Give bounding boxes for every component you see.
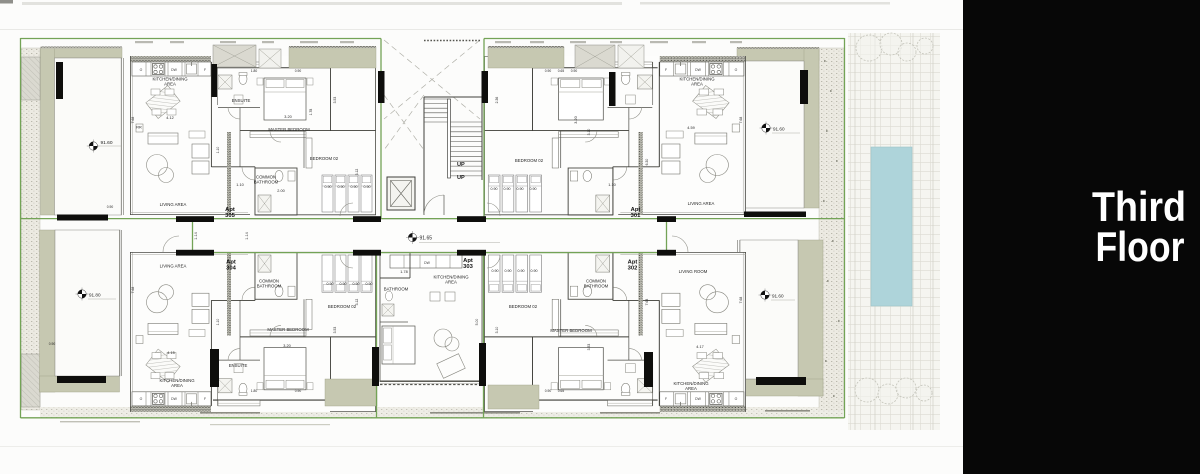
svg-text:0.90: 0.90 [531,269,538,273]
svg-text:F: F [204,397,206,401]
svg-text:UP: UP [457,162,465,168]
svg-text:4.15: 4.15 [167,351,174,355]
svg-text:DW: DW [695,397,701,401]
svg-text:F: F [665,68,667,72]
svg-text:0.90: 0.90 [364,185,371,189]
svg-text:BATHROOM: BATHROOM [384,287,409,292]
svg-text:BEDROOM 02: BEDROOM 02 [515,158,544,163]
svg-text:0.90: 0.90 [295,69,302,73]
svg-text:0.90: 0.90 [295,389,302,393]
svg-text:5.00: 5.00 [475,319,479,326]
svg-text:304: 304 [226,266,236,272]
svg-text:7.68: 7.68 [739,297,743,304]
svg-text:AREA: AREA [445,280,457,285]
svg-text:0.90: 0.90 [351,185,358,189]
svg-text:1.80: 1.80 [251,69,258,73]
svg-text:Apt: Apt [631,207,641,213]
svg-text:DW: DW [424,261,430,265]
svg-text:0.90: 0.90 [49,342,56,346]
svg-text:BATHROOM: BATHROOM [257,284,282,289]
svg-text:0.90: 0.90 [530,187,537,191]
svg-text:O: O [735,68,738,72]
svg-text:3.53: 3.53 [587,344,591,351]
svg-text:0.90: 0.90 [338,185,345,189]
svg-text:BATHROOM: BATHROOM [584,284,609,289]
svg-text:0.90: 0.90 [340,282,347,286]
svg-text:91.60: 91.60 [773,127,785,132]
svg-text:3.20: 3.20 [284,115,291,119]
svg-text:0.90: 0.90 [107,205,114,209]
svg-text:1.78: 1.78 [400,270,407,274]
svg-text:0.90: 0.90 [491,187,498,191]
svg-text:0.65: 0.65 [558,389,565,393]
svg-text:3.20: 3.20 [574,116,578,123]
svg-text:0.90: 0.90 [505,269,512,273]
svg-text:ENSUITE: ENSUITE [232,98,251,103]
svg-text:3.12: 3.12 [355,169,359,176]
svg-text:305: 305 [225,213,235,219]
svg-text:BEDROOM 02: BEDROOM 02 [328,304,357,309]
svg-text:Apt: Apt [226,260,236,266]
svg-text:4.12: 4.12 [166,116,173,120]
svg-text:2.00: 2.00 [277,189,284,193]
svg-text:O: O [140,68,143,72]
svg-text:Apt: Apt [463,258,473,264]
svg-text:Apt: Apt [225,207,235,213]
svg-text:4.17: 4.17 [696,345,703,349]
svg-text:AREA: AREA [685,386,697,391]
svg-text:91.80: 91.80 [89,293,101,298]
svg-text:1.14: 1.14 [194,232,198,239]
svg-text:91.60: 91.60 [772,294,784,299]
svg-text:1.10: 1.10 [236,183,243,187]
svg-text:1.14: 1.14 [245,232,249,239]
svg-text:6.30: 6.30 [645,159,649,166]
svg-text:LIVING ROOM: LIVING ROOM [679,269,708,274]
svg-text:3.20: 3.20 [283,344,290,348]
svg-text:7.68: 7.68 [645,299,649,306]
svg-text:0.90: 0.90 [366,282,373,286]
svg-text:0.90: 0.90 [545,389,552,393]
svg-text:0.90: 0.90 [518,269,525,273]
svg-text:7.68: 7.68 [131,287,135,294]
svg-text:BEDROOM 02: BEDROOM 02 [310,156,339,161]
svg-text:MASTER BEDROOM: MASTER BEDROOM [550,328,592,333]
svg-text:3.10: 3.10 [587,129,591,136]
svg-text:3.53: 3.53 [333,97,337,104]
svg-text:301: 301 [631,213,641,219]
svg-text:BEDROOM 02: BEDROOM 02 [509,304,538,309]
svg-text:DW: DW [695,68,701,72]
svg-text:0.90: 0.90 [517,187,524,191]
svg-text:RR: RR [136,126,142,130]
svg-text:1.80: 1.80 [251,389,258,393]
svg-text:Apt: Apt [628,260,638,266]
svg-text:LIVING AREA: LIVING AREA [688,201,715,206]
svg-text:3.10: 3.10 [495,327,499,334]
svg-text:0.65: 0.65 [558,69,565,73]
svg-text:AREA: AREA [164,82,176,87]
svg-text:Floor: Floor [1096,223,1185,270]
svg-text:7.68: 7.68 [739,117,743,124]
svg-text:3.53: 3.53 [333,327,337,334]
svg-text:DW: DW [171,397,177,401]
svg-text:0.90: 0.90 [545,69,552,73]
svg-text:1.10: 1.10 [216,319,220,326]
svg-text:BATHROOM: BATHROOM [254,180,279,185]
svg-text:DW: DW [171,68,177,72]
svg-text:MASTER BEDROOM: MASTER BEDROOM [267,327,309,332]
svg-text:1.10: 1.10 [608,183,615,187]
svg-text:LIVING AREA: LIVING AREA [160,264,187,269]
svg-text:2.36: 2.36 [495,97,499,104]
svg-text:3.12: 3.12 [355,299,359,306]
svg-text:303: 303 [463,264,473,270]
svg-text:0.90: 0.90 [492,269,499,273]
svg-text:7.68: 7.68 [131,117,135,124]
svg-text:AREA: AREA [691,82,703,87]
svg-text:ENSUITE: ENSUITE [229,363,248,368]
svg-text:F: F [204,68,206,72]
svg-text:O: O [735,397,738,401]
svg-text:0.90: 0.90 [325,185,332,189]
svg-text:4.59: 4.59 [687,126,694,130]
svg-text:1.10: 1.10 [216,147,220,154]
svg-text:O: O [140,397,143,401]
svg-text:AREA: AREA [171,383,183,388]
svg-text:1.78: 1.78 [309,109,313,116]
svg-text:0.90: 0.90 [571,69,578,73]
svg-text:0.90: 0.90 [353,282,360,286]
svg-text:LIVING AREA: LIVING AREA [160,202,187,207]
svg-text:91.65: 91.65 [420,236,433,242]
svg-text:0.90: 0.90 [327,282,334,286]
svg-text:0.90: 0.90 [504,187,511,191]
svg-text:91.60: 91.60 [101,140,113,146]
svg-text:F: F [665,397,667,401]
svg-text:302: 302 [628,266,638,272]
svg-text:UP: UP [457,175,465,181]
svg-text:MASTER BEDROOM: MASTER BEDROOM [268,127,310,132]
